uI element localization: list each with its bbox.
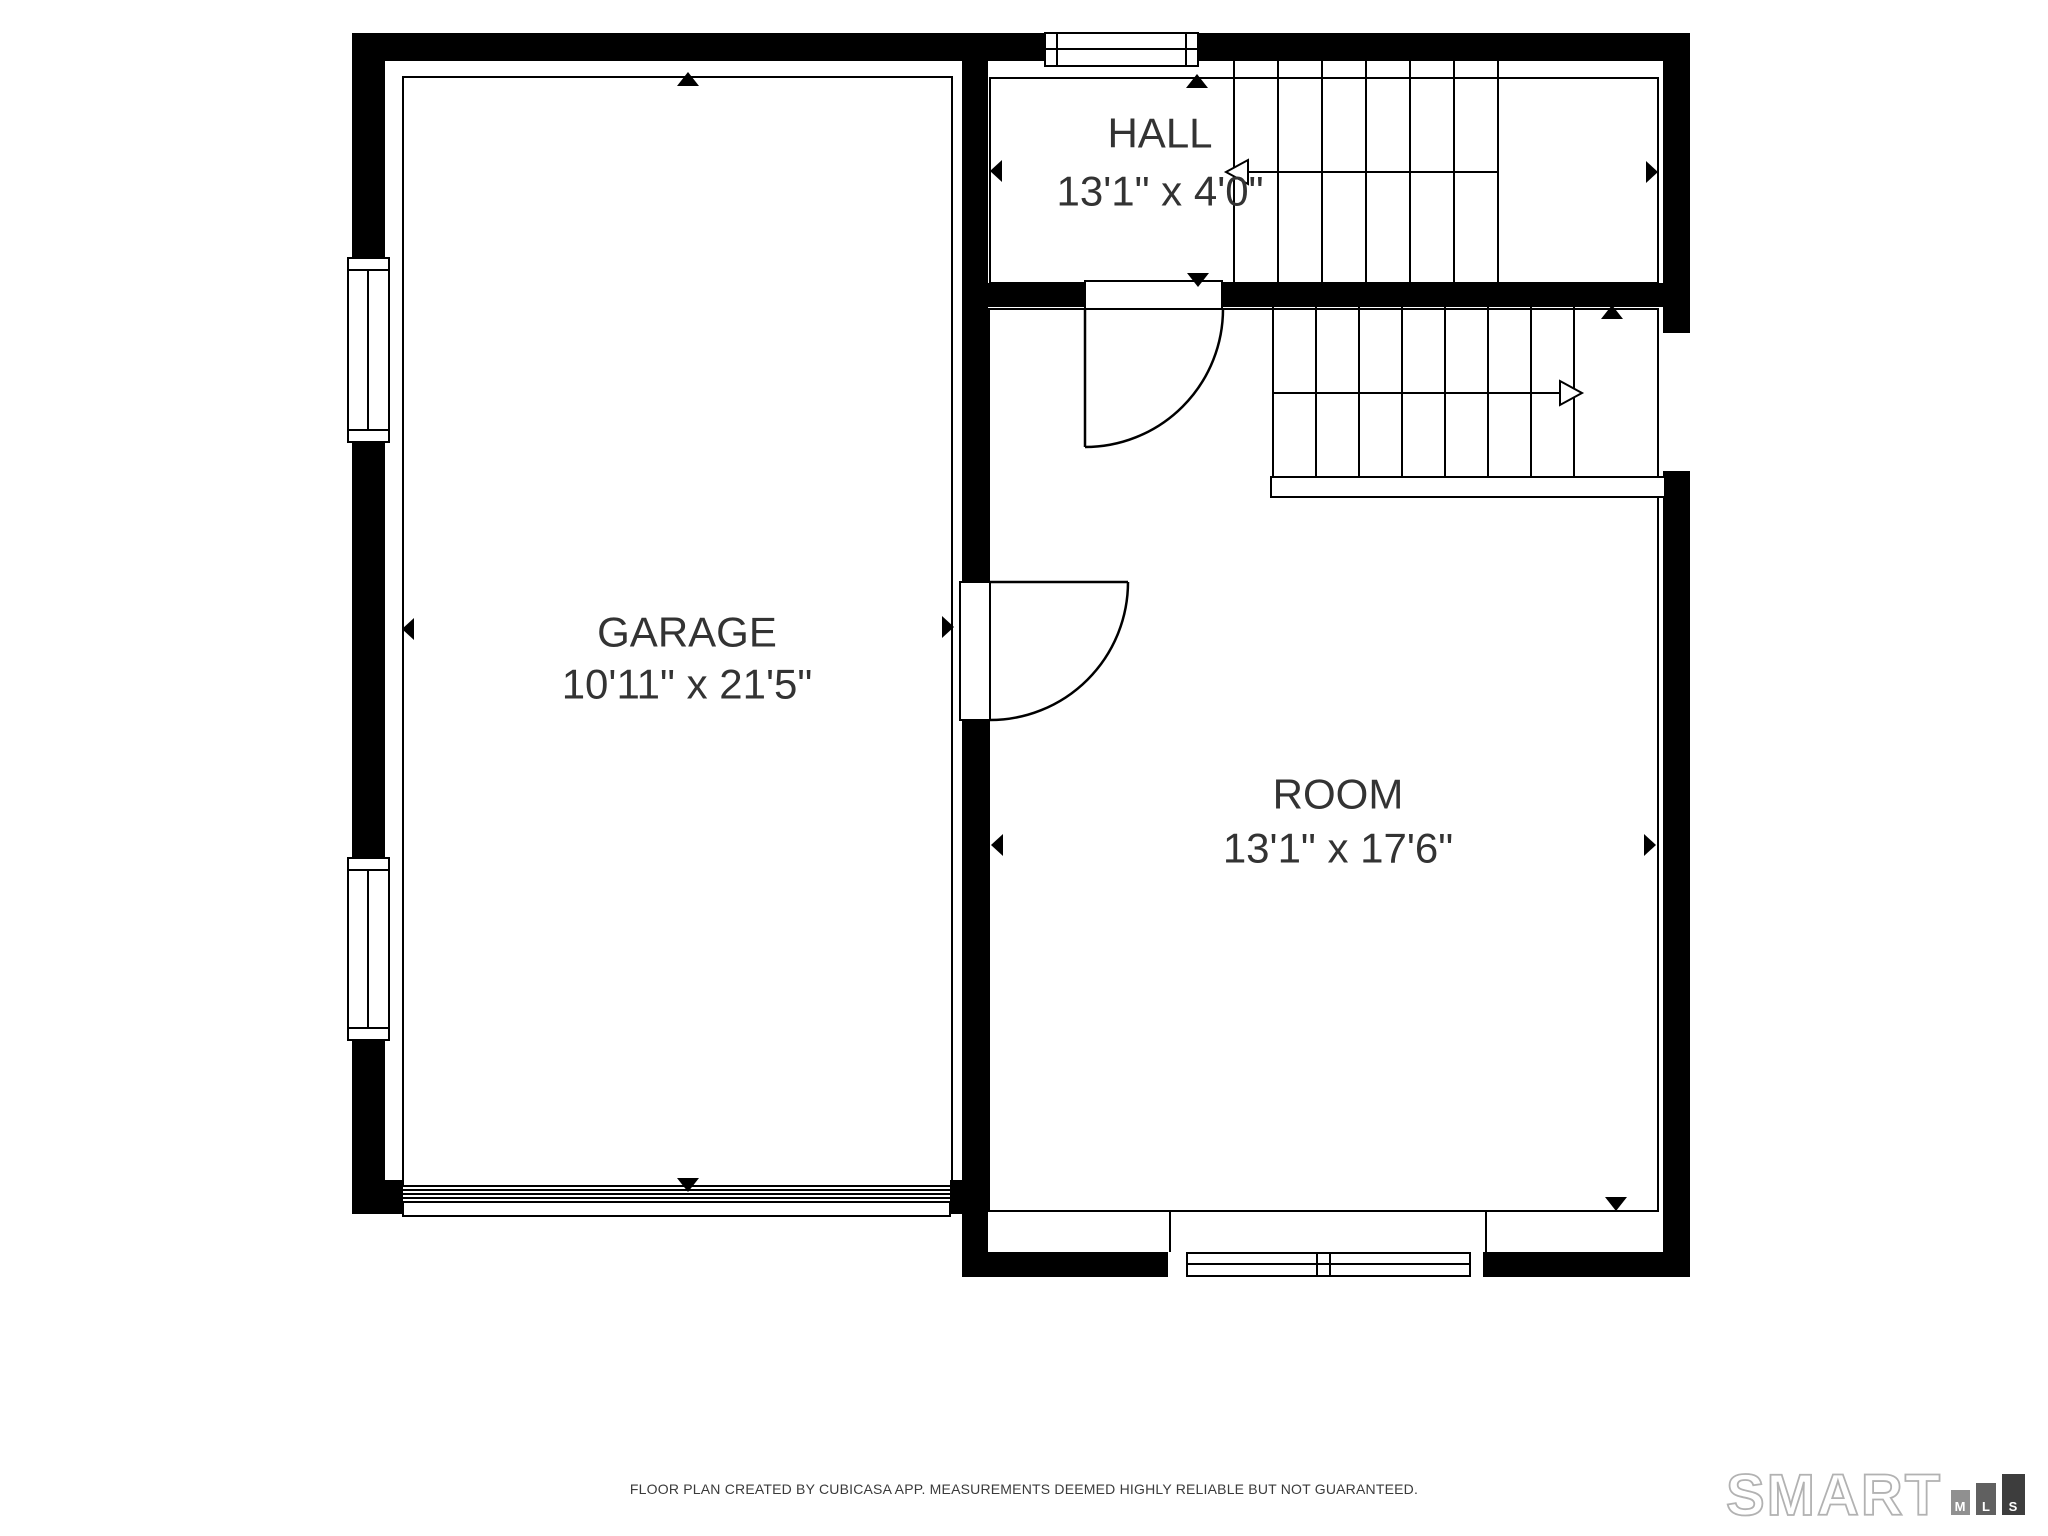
- window-garage-left-upper: [348, 258, 389, 442]
- window-hall-top: [1045, 33, 1198, 66]
- door-threshold: [1085, 281, 1222, 309]
- dimension-arrow-room-up: [1601, 305, 1623, 319]
- staircase-upper: [1226, 61, 1498, 283]
- floor-plan-page: GARAGE 10'11" x 21'5" HALL 13'1" x 4'0" …: [0, 0, 2048, 1536]
- dimension-arrow-room-left: [991, 834, 1003, 856]
- wall-gap-right: [1661, 331, 1692, 473]
- door-swing-arc: [990, 582, 1128, 720]
- garage-dimensions: 10'11" x 21'5": [562, 661, 813, 708]
- window-room-bottom: [1168, 1252, 1483, 1277]
- floor-plan-drawing: GARAGE 10'11" x 21'5" HALL 13'1" x 4'0" …: [0, 0, 2048, 1536]
- room-label: ROOM: [1273, 771, 1404, 818]
- hall-dimensions: 13'1" x 4'0": [1057, 168, 1264, 215]
- wall-top: [352, 33, 1690, 61]
- wall-right: [1663, 33, 1690, 1277]
- room-dimensions: 13'1" x 17'6": [1223, 825, 1453, 872]
- stair-landing: [1271, 477, 1665, 497]
- door-swing-arc: [1085, 309, 1223, 447]
- window-garage-left-lower: [348, 858, 389, 1040]
- dimension-arrow-hall-right: [1646, 161, 1658, 183]
- garage-door: [403, 1178, 950, 1218]
- hall-label: HALL: [1107, 110, 1212, 157]
- logo-bar-l-label: L: [1982, 1499, 1990, 1514]
- windows-and-openings: [348, 33, 1692, 1277]
- garage-label: GARAGE: [597, 609, 777, 656]
- dimension-arrow-room-right: [1644, 834, 1656, 856]
- dimension-arrow-room-down: [1605, 1197, 1627, 1211]
- logo-brand-text: SMART: [1726, 1463, 1942, 1528]
- smartmls-logo: SMART M L S: [1718, 1460, 2038, 1530]
- staircase-lower: [1271, 307, 1665, 497]
- logo-bar-s-label: S: [2009, 1499, 2018, 1514]
- dimension-arrow-hall-left: [990, 160, 1002, 182]
- stair-direction-arrow-right: [1560, 381, 1582, 405]
- logo-bar-m-label: M: [1955, 1499, 1966, 1514]
- door-hall-room: [1085, 281, 1223, 447]
- dimension-arrow-hall-up: [1186, 74, 1208, 88]
- room-outline: [989, 309, 1658, 1211]
- door-garage-room: [960, 582, 1128, 720]
- door-threshold: [960, 582, 990, 720]
- dimension-arrow-garage-up: [677, 72, 699, 86]
- dimension-arrows: [402, 72, 1658, 1211]
- walls: [352, 33, 1690, 1277]
